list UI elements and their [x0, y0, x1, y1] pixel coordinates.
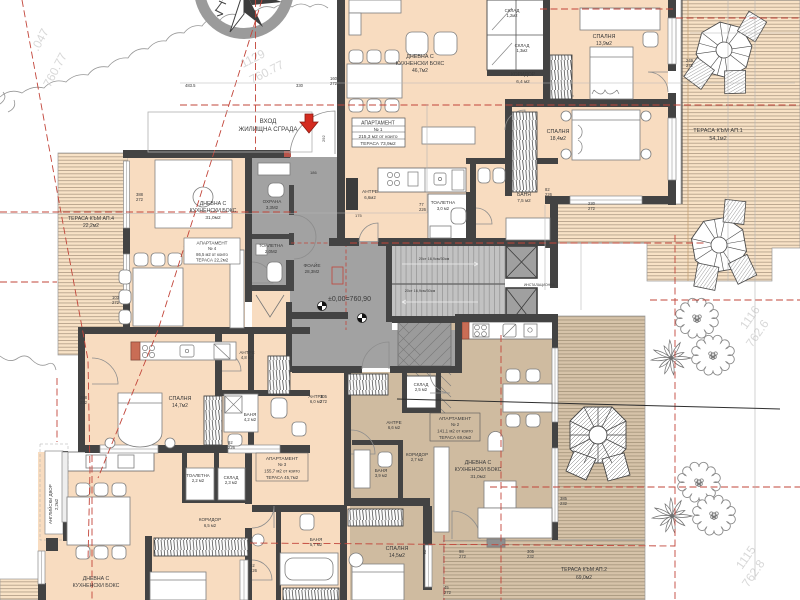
svg-text:КУХНЕНСКИ БОКС: КУХНЕНСКИ БОКС [73, 583, 120, 589]
svg-text:АНГЛИЙСКИ ДВОР: АНГЛИЙСКИ ДВОР [48, 484, 53, 524]
svg-text:330: 330 [296, 83, 304, 88]
svg-text:28,3М2: 28,3М2 [305, 269, 320, 274]
svg-text:46,7м2: 46,7м2 [412, 68, 428, 74]
svg-text:ТЕРАСА 22,2м2: ТЕРАСА 22,2м2 [196, 258, 229, 263]
svg-text:ТЕРАСА КЪМ АП.1: ТЕРАСА КЪМ АП.1 [693, 128, 743, 134]
svg-text:226: 226 [419, 207, 427, 212]
svg-text:232: 232 [560, 501, 568, 506]
svg-text:6,6м2: 6,6м2 [364, 195, 376, 200]
svg-text:272: 272 [686, 63, 694, 68]
svg-text:14,7м2: 14,7м2 [172, 403, 188, 409]
svg-text:КУХНЕНСКИ БОКС: КУХНЕНСКИ БОКС [190, 208, 237, 214]
svg-text:ИНСТАЛАЦИОННА: ИНСТАЛАЦИОННА [524, 283, 555, 287]
svg-text:54,1м2: 54,1м2 [709, 136, 726, 142]
svg-text:ТЕРАСА 69,0м2: ТЕРАСА 69,0м2 [439, 435, 472, 440]
svg-text:232: 232 [80, 400, 88, 405]
svg-text:СПАЛНЯ: СПАЛНЯ [547, 129, 570, 135]
svg-text:ДНЕВНА С: ДНЕВНА С [83, 576, 110, 582]
svg-text:4,2 м2: 4,2 м2 [244, 417, 257, 422]
svg-text:272: 272 [444, 590, 452, 595]
svg-text:69,0м2: 69,0м2 [576, 575, 592, 581]
svg-text:КОРИДОР: КОРИДОР [199, 517, 221, 522]
svg-text:22,2м2: 22,2м2 [83, 223, 99, 229]
svg-text:КУХНЕНСКИ БОКС: КУХНЕНСКИ БОКС [455, 467, 502, 473]
svg-text:4,8 м2: 4,8 м2 [241, 355, 254, 360]
svg-text:№ 3: № 3 [278, 462, 287, 467]
svg-text:226: 226 [545, 192, 553, 197]
svg-text:232: 232 [527, 554, 535, 559]
svg-text:7,5 м2: 7,5 м2 [517, 198, 531, 203]
svg-text:ДНЕВНА С: ДНЕВНА С [200, 201, 227, 207]
svg-text:№ 1: № 1 [374, 127, 383, 132]
svg-text:272: 272 [112, 300, 120, 305]
svg-text:155,7 м2 от които: 155,7 м2 от които [264, 469, 300, 474]
svg-text:14,5м2: 14,5м2 [389, 553, 405, 559]
svg-text:ТОАЛЕТНА: ТОАЛЕТНА [431, 200, 456, 205]
svg-text:5,7 м2: 5,7 м2 [310, 542, 323, 547]
svg-text:АПАРТАМЕНТ: АПАРТАМЕНТ [197, 241, 228, 246]
svg-text:31,0м2: 31,0м2 [205, 215, 221, 221]
svg-text:±0,00=760,90: ±0,00=760,90 [328, 296, 371, 303]
svg-text:272: 272 [330, 81, 338, 86]
svg-text:ДНЕВНА С: ДНЕВНА С [465, 460, 492, 466]
svg-text:175: 175 [355, 213, 362, 218]
svg-text:141,1 м2 от които: 141,1 м2 от които [437, 429, 473, 434]
svg-text:2,7 м2: 2,7 м2 [411, 457, 424, 462]
svg-text:СПАЛНЯ: СПАЛНЯ [593, 34, 616, 40]
svg-text:ОХРАНА: ОХРАНА [263, 199, 283, 204]
svg-text:АПАРТАМЕНТ: АПАРТАМЕНТ [361, 121, 395, 127]
svg-text:2,0М2: 2,0М2 [265, 249, 278, 254]
svg-text:3,0 м2: 3,0 м2 [437, 206, 450, 211]
svg-text:1,2м2: 1,2м2 [506, 13, 518, 18]
svg-text:КУХНЕНСКИ БОКС: КУХНЕНСКИ БОКС [396, 61, 445, 67]
svg-text:ТЕРАСА 73,9м2: ТЕРАСА 73,9м2 [360, 141, 396, 147]
svg-text:ВХОД: ВХОД [260, 118, 277, 125]
svg-text:86,5 м2 от които: 86,5 м2 от които [196, 252, 228, 257]
svg-text:№ 2: № 2 [451, 422, 460, 427]
svg-text:ДНЕВНА С: ДНЕВНА С [406, 54, 434, 60]
svg-text:292: 292 [321, 135, 326, 142]
svg-text:ТЕРАСА КЪМ АП.2: ТЕРАСА КЪМ АП.2 [561, 567, 607, 573]
svg-text:1,3м2: 1,3м2 [516, 48, 528, 53]
svg-text:2,2м2: 2,2м2 [54, 498, 59, 510]
svg-text:ТОАЛЕТНА: ТОАЛЕТНА [259, 243, 284, 248]
svg-text:272: 272 [459, 554, 467, 559]
svg-text:186: 186 [310, 170, 317, 175]
svg-text:272: 272 [136, 197, 144, 202]
svg-text:18,4м2: 18,4м2 [550, 136, 566, 142]
svg-text:6,4 м2: 6,4 м2 [516, 79, 530, 84]
svg-text:№ 4: № 4 [208, 246, 217, 251]
svg-text:483.5: 483.5 [185, 83, 196, 88]
svg-text:СПАЛНЯ: СПАЛНЯ [386, 546, 409, 552]
svg-text:2,5 м2: 2,5 м2 [415, 387, 428, 392]
svg-text:272: 272 [320, 399, 328, 404]
svg-text:20ст 16,9см/30см: 20ст 16,9см/30см [419, 257, 450, 261]
svg-text:215,3 м2 от които: 215,3 м2 от които [358, 134, 397, 140]
svg-text:3,3М2: 3,3М2 [266, 205, 279, 210]
svg-text:КОРИДОР: КОРИДОР [511, 72, 536, 78]
svg-text:6,6 м2: 6,6 м2 [388, 425, 401, 430]
svg-text:3,9 м2: 3,9 м2 [375, 473, 388, 478]
svg-text:2,3 м2: 2,3 м2 [225, 480, 238, 485]
svg-text:92: 92 [422, 549, 427, 554]
svg-text:272: 272 [588, 206, 596, 211]
svg-text:31,0м2: 31,0м2 [470, 474, 486, 480]
svg-text:СПАЛНЯ: СПАЛНЯ [169, 396, 192, 402]
svg-text:226: 226 [228, 445, 236, 450]
svg-text:20ст 16,9см/30см: 20ст 16,9см/30см [405, 289, 436, 293]
svg-text:13,9м2: 13,9м2 [596, 41, 612, 47]
svg-text:ТЕРАСА 45,7м2: ТЕРАСА 45,7м2 [266, 475, 299, 480]
svg-text:226: 226 [250, 568, 258, 573]
svg-text:2,2 м2: 2,2 м2 [192, 478, 205, 483]
svg-text:ЖИЛИЩНА СГРАДА: ЖИЛИЩНА СГРАДА [239, 126, 299, 133]
svg-text:6,5 м2: 6,5 м2 [204, 523, 217, 528]
svg-text:ТЕРАСА КЪМ АП.4: ТЕРАСА КЪМ АП.4 [68, 216, 114, 222]
